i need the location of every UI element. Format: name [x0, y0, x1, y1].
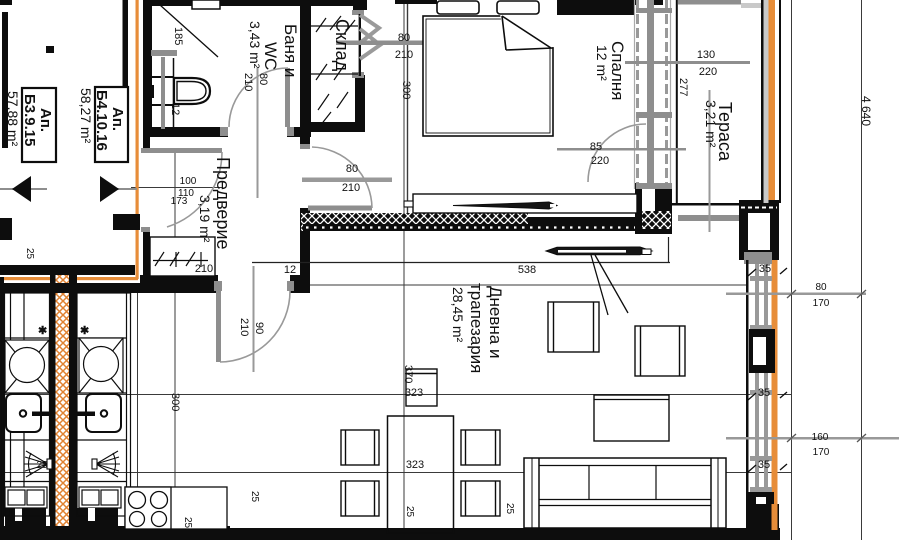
svg-text:80: 80 [346, 163, 358, 175]
svg-text:25: 25 [249, 491, 260, 503]
svg-text:170: 170 [813, 447, 830, 458]
svg-text:210: 210 [395, 49, 413, 61]
svg-text:4 640: 4 640 [859, 96, 873, 126]
svg-text:220: 220 [591, 155, 609, 167]
svg-text:Ап.: Ап. [109, 107, 126, 131]
svg-text:35: 35 [758, 459, 770, 471]
svg-text:210: 210 [238, 318, 250, 336]
svg-text:300: 300 [169, 393, 181, 411]
svg-text:100: 100 [180, 176, 197, 187]
svg-text:25: 25 [24, 248, 35, 260]
svg-text:300: 300 [400, 81, 412, 99]
svg-text:Б4.10.16: Б4.10.16 [93, 90, 110, 151]
svg-text:80: 80 [257, 73, 269, 85]
svg-text:12: 12 [284, 264, 296, 276]
svg-text:Ап.: Ап. [37, 108, 54, 132]
svg-text:130: 130 [697, 49, 715, 61]
svg-text:210: 210 [342, 182, 360, 194]
svg-text:25: 25 [182, 517, 193, 529]
svg-text:173: 173 [171, 196, 188, 207]
svg-text:57,88 m²: 57,88 m² [5, 91, 21, 147]
svg-text:220: 220 [699, 66, 717, 78]
svg-text:трапезария: трапезария [467, 283, 486, 373]
svg-text:25: 25 [404, 506, 415, 518]
svg-text:Дневна и: Дневна и [486, 286, 505, 358]
svg-text:58,27 m²: 58,27 m² [78, 88, 94, 144]
svg-text:Склад: Склад [332, 19, 352, 72]
svg-text:Баня и: Баня и [281, 24, 300, 77]
svg-text:210: 210 [242, 73, 254, 91]
svg-text:210: 210 [195, 263, 213, 275]
svg-text:25: 25 [504, 503, 515, 515]
svg-text:323: 323 [406, 459, 424, 471]
svg-text:80: 80 [398, 32, 410, 44]
svg-text:323: 323 [405, 387, 423, 399]
svg-text:35: 35 [759, 263, 771, 275]
svg-text:3,43 m²: 3,43 m² [247, 21, 263, 69]
svg-text:85: 85 [590, 141, 602, 153]
svg-text:35: 35 [758, 387, 770, 399]
svg-text:✱: ✱ [80, 325, 89, 337]
svg-text:370: 370 [402, 365, 414, 383]
svg-text:3,19 m²: 3,19 m² [197, 195, 213, 243]
svg-text:80: 80 [815, 282, 827, 293]
svg-text:Б3.9.15: Б3.9.15 [21, 94, 38, 147]
svg-text:277: 277 [677, 78, 689, 96]
svg-text:90: 90 [253, 322, 265, 334]
svg-text:25: 25 [36, 460, 48, 471]
svg-text:Предверие: Предверие [213, 157, 233, 250]
svg-text:✱: ✱ [38, 325, 47, 337]
svg-text:28,45 m²: 28,45 m² [450, 287, 466, 343]
svg-text:12: 12 [169, 103, 181, 115]
svg-text:160: 160 [812, 432, 829, 443]
svg-text:3,21 m²: 3,21 m² [703, 100, 719, 148]
svg-text:170: 170 [813, 298, 830, 309]
svg-text:185: 185 [172, 27, 184, 45]
svg-text:12 m²: 12 m² [594, 45, 610, 81]
svg-text:538: 538 [518, 264, 536, 276]
